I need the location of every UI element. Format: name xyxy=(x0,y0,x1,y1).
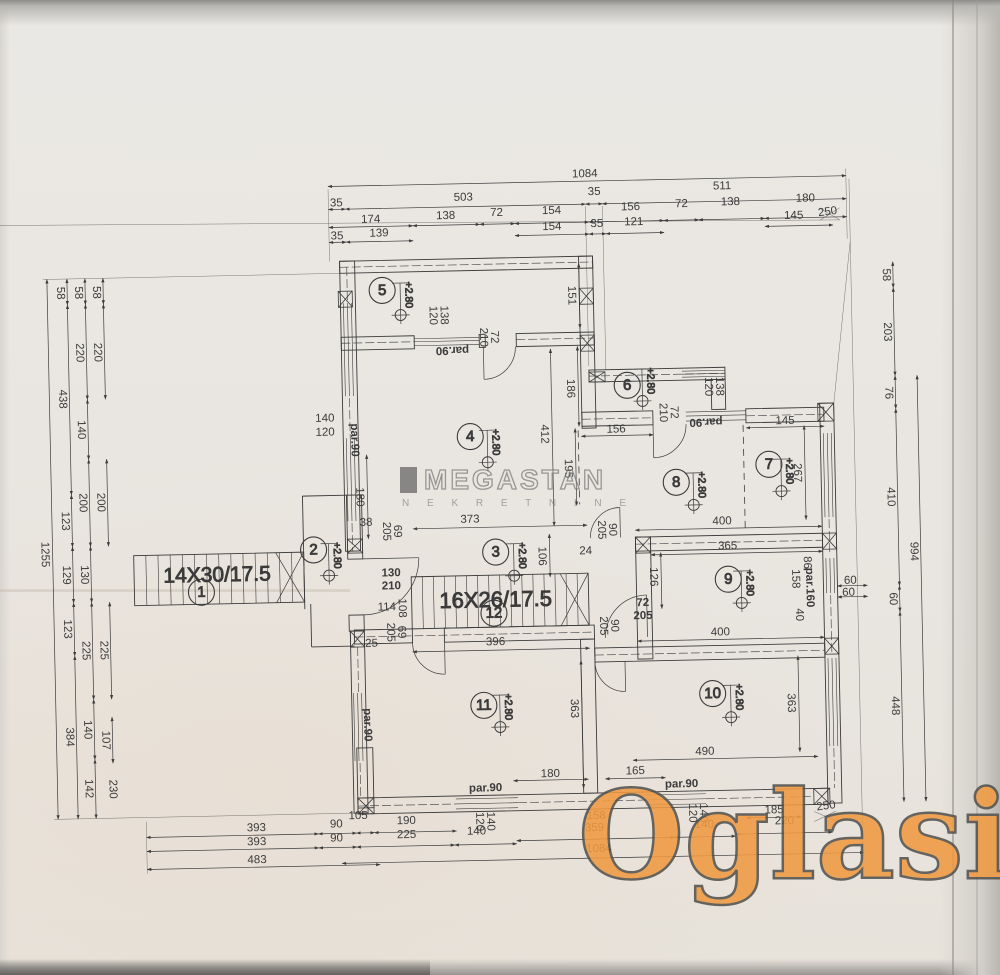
room-number: 4 xyxy=(466,428,475,445)
dim-line xyxy=(917,375,926,801)
level-marker: +2.80 xyxy=(684,471,708,514)
dim-label: 105 xyxy=(348,810,367,822)
dim-label: 393 xyxy=(247,822,266,834)
level-value: +2.80 xyxy=(743,569,756,596)
dim-label: 373 xyxy=(460,513,479,525)
level-value: +2.80 xyxy=(489,429,502,456)
dim-line xyxy=(577,346,579,426)
dim-label: 139 xyxy=(369,227,388,239)
room-number: 1 xyxy=(197,584,206,601)
dim-label: 123 xyxy=(59,511,71,530)
dim-label: 205 xyxy=(597,616,609,635)
dim-label: 384 xyxy=(63,727,75,747)
level-value: +2.80 xyxy=(783,458,796,485)
room-number: 10 xyxy=(704,685,721,702)
dim-label: 195 xyxy=(562,459,574,478)
dim-label: 154 xyxy=(542,221,562,233)
dim-label: 38 xyxy=(360,517,373,529)
room-number: 11 xyxy=(476,697,492,714)
dim-label: par.90 xyxy=(361,708,374,741)
dim-label: 58 xyxy=(54,287,66,300)
dim-label: 156 xyxy=(621,201,640,213)
dim-label: 174 xyxy=(361,213,381,225)
dim-label: 165 xyxy=(626,765,645,777)
dim-label: 76 xyxy=(882,386,894,399)
dim-label: 225 xyxy=(97,641,109,660)
dim-label: 158 xyxy=(789,569,801,588)
stair-tread xyxy=(422,577,423,629)
dim-line xyxy=(413,224,480,225)
dim-label: 438 xyxy=(56,389,68,408)
dimension-annotations: 1084355033551117413872154156721381803513… xyxy=(31,161,927,871)
dim-label: 448 xyxy=(889,696,901,715)
dim-label: 138 xyxy=(436,210,455,222)
dim-label: 250 xyxy=(816,799,837,813)
dim-label: 220 xyxy=(73,343,85,362)
dim-label: 145 xyxy=(775,415,794,427)
dim-line xyxy=(517,837,675,840)
dim-label: 121 xyxy=(624,216,643,228)
dim-label: par.90 xyxy=(348,423,361,456)
dim-label: 225 xyxy=(79,641,91,660)
dim-label: 130 xyxy=(381,567,400,579)
dim-label: 154 xyxy=(542,205,562,217)
dim-label: 60 xyxy=(844,575,857,587)
room-number: 12 xyxy=(485,604,502,621)
dim-line xyxy=(357,845,455,847)
dim-label: 483 xyxy=(247,854,266,866)
dim-label: 25 xyxy=(365,638,378,650)
walls xyxy=(298,251,842,815)
dim-label: 120 xyxy=(426,306,438,325)
dim-label: 220 xyxy=(91,343,103,362)
dim-label: 126 xyxy=(647,567,659,586)
dim-label: 60 xyxy=(887,592,899,605)
dim-line xyxy=(661,553,662,609)
floor-plan-drawing: 1084355033551117413872154156721381803513… xyxy=(0,0,1000,975)
dim-label: 140 xyxy=(467,825,486,837)
dim-line xyxy=(319,847,357,848)
dim-line xyxy=(147,848,319,852)
level-value: +2.80 xyxy=(402,281,415,308)
dim-label: 72 xyxy=(636,597,649,609)
level-value: +2.80 xyxy=(695,471,708,498)
dim-line xyxy=(579,263,580,328)
dim-label: 130 xyxy=(78,565,90,584)
room-number: 3 xyxy=(491,543,500,560)
dim-line xyxy=(575,428,577,505)
dim-line xyxy=(606,233,664,234)
dim-label: 107 xyxy=(99,731,111,750)
dim-label: 58 xyxy=(90,286,102,299)
room-number: 2 xyxy=(309,541,318,558)
dim-label: 138 xyxy=(721,196,740,208)
dim-label: 35 xyxy=(588,186,601,198)
dim-label: 142 xyxy=(82,779,94,798)
dim-label: 203 xyxy=(881,322,893,341)
dim-label: 35 xyxy=(590,218,603,230)
dim-label: 72 xyxy=(490,207,503,219)
dim-label: 200 xyxy=(76,493,88,512)
dim-label: 151 xyxy=(565,286,577,305)
dim-label: 180 xyxy=(353,487,365,506)
dim-line xyxy=(605,778,665,779)
extension-lines xyxy=(0,169,863,877)
dim-label: 250 xyxy=(817,205,838,219)
dim-label: 210 xyxy=(382,580,401,592)
dim-label: 363 xyxy=(785,693,797,712)
stair-tread xyxy=(291,552,292,602)
level-value: +2.80 xyxy=(502,693,515,720)
dim-label: 129 xyxy=(60,565,72,584)
stair-tread xyxy=(433,576,434,628)
dim-label: 359 xyxy=(585,822,604,834)
dim-label: 158 xyxy=(587,810,606,822)
dim-line xyxy=(638,637,825,641)
dim-label: 393 xyxy=(247,836,266,848)
dim-line xyxy=(633,756,818,760)
dim-label: 58 xyxy=(72,286,84,299)
dim-line xyxy=(413,648,590,652)
dim-label: 412 xyxy=(538,424,550,443)
dim-line xyxy=(346,241,413,242)
room-number: 9 xyxy=(724,571,733,588)
door-arcs xyxy=(358,343,691,697)
dim-label: 1255 xyxy=(38,542,51,568)
room-number: 5 xyxy=(378,282,387,299)
dim-label: 35 xyxy=(331,230,344,242)
dim-label: 90 xyxy=(330,818,343,830)
dim-label: par.90 xyxy=(469,782,502,795)
dim-line xyxy=(549,534,550,577)
dim-label: par.160 xyxy=(803,568,816,608)
level-value: +2.80 xyxy=(516,542,529,569)
dim-label: 1084 xyxy=(572,168,598,181)
dim-label: 145 xyxy=(784,210,803,222)
level-value: +2.80 xyxy=(331,542,344,569)
dim-label: 230 xyxy=(106,779,118,798)
dim-label: 140 xyxy=(81,720,93,739)
dim-line xyxy=(699,218,765,219)
dim-label: 205 xyxy=(633,610,653,622)
dim-label: 365 xyxy=(718,540,737,552)
dim-label: 60 xyxy=(842,587,855,599)
stair-tread xyxy=(566,574,567,626)
dim-label: 200 xyxy=(94,493,106,512)
dim-label: 400 xyxy=(711,626,730,638)
stair-tread xyxy=(146,555,147,605)
dim-label: 120 xyxy=(702,377,714,396)
dim-line xyxy=(765,225,833,226)
level-marker: +2.80 xyxy=(633,367,657,410)
dim-label: 180 xyxy=(541,768,560,780)
level-marker: +2.80 xyxy=(319,542,343,585)
level-marker: +2.80 xyxy=(491,693,515,736)
dim-label: 225 xyxy=(397,829,416,841)
dim-label: 186 xyxy=(564,379,576,398)
dim-label: 190 xyxy=(397,815,416,827)
dim-label: 180 xyxy=(796,192,815,204)
room-number: 6 xyxy=(623,377,632,394)
stair-tread xyxy=(158,555,159,605)
dim-line xyxy=(413,525,587,529)
dim-label: 396 xyxy=(486,636,505,648)
level-marker: +2.80 xyxy=(732,569,756,612)
dim-label: 220 xyxy=(775,815,794,827)
stair-label: 14X30/17.5 xyxy=(163,562,271,587)
dim-label: 363 xyxy=(568,699,580,718)
dim-line xyxy=(515,234,589,236)
dim-line xyxy=(581,660,584,788)
dim-label: par.90 xyxy=(436,344,469,357)
dim-label: par.90 xyxy=(665,778,698,791)
level-value: +2.80 xyxy=(733,684,746,711)
stair-tread xyxy=(577,573,578,625)
dim-label: 410 xyxy=(884,487,896,506)
dim-line xyxy=(455,844,517,845)
level-markers: +2.80+2.80+2.80+2.80+2.80+2.80+2.80+2.80… xyxy=(314,274,801,740)
dim-label: 40 xyxy=(793,608,805,621)
dim-line xyxy=(480,224,515,225)
dim-label: 511 xyxy=(713,180,732,192)
dim-label: 156 xyxy=(606,423,625,435)
dim-label: 72 xyxy=(675,198,688,210)
paper-edge-shadow xyxy=(0,959,430,975)
room-number: 8 xyxy=(672,474,681,491)
dim-label: 994 xyxy=(908,542,920,562)
dim-label: 210 xyxy=(477,328,489,347)
dim-label: 205 xyxy=(384,623,396,642)
dim-label: 58 xyxy=(880,268,892,281)
level-value: +2.80 xyxy=(644,367,657,394)
dim-label: 90 xyxy=(330,832,343,844)
dim-label: 503 xyxy=(454,192,473,204)
dim-line xyxy=(736,832,833,834)
dim-label: 35 xyxy=(330,197,343,209)
level-marker: +2.80 xyxy=(772,458,796,501)
dim-line xyxy=(798,656,800,752)
dim-label: 24 xyxy=(579,545,593,557)
stair-tread xyxy=(555,574,556,626)
dim-label: 1084 xyxy=(586,843,612,856)
dim-label: 140 xyxy=(695,819,714,831)
dim-label: 400 xyxy=(712,515,731,527)
dim-label: 140 xyxy=(75,420,87,439)
dim-label: 108 xyxy=(396,598,408,617)
dim-label: 205 xyxy=(380,522,392,541)
room-number: 7 xyxy=(765,456,774,473)
dim-label: 205 xyxy=(595,520,607,539)
dim-label: par.90 xyxy=(689,415,722,428)
dim-label: 490 xyxy=(695,746,714,758)
dim-label: 140 xyxy=(315,412,334,424)
dim-line xyxy=(147,834,319,838)
dim-line xyxy=(804,426,806,520)
dim-label: 106 xyxy=(536,546,548,565)
dim-line xyxy=(675,836,736,837)
dim-label: 114 xyxy=(378,601,397,613)
dim-label: 123 xyxy=(61,619,73,638)
dim-line xyxy=(664,220,699,221)
level-marker: +2.80 xyxy=(478,429,502,472)
dim-label: 210 xyxy=(657,403,669,422)
dim-label: 120 xyxy=(315,426,334,438)
